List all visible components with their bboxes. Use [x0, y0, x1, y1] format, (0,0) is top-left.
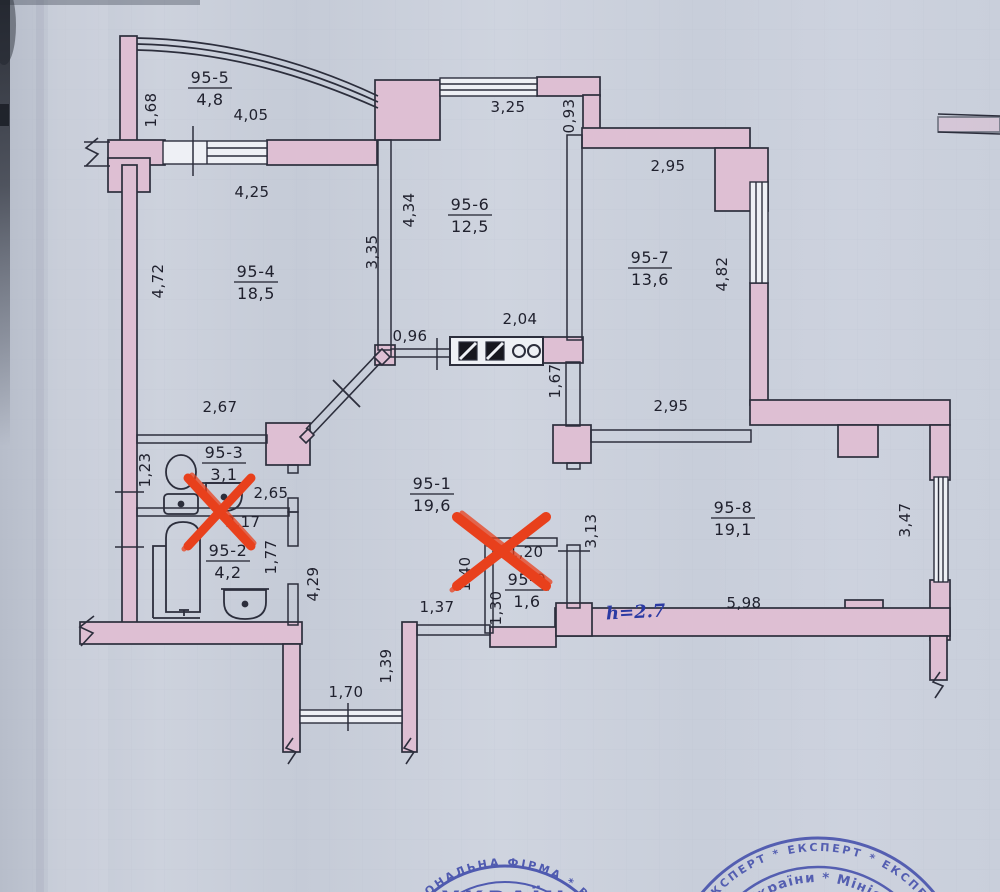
dimension-label: 1,23 [136, 453, 154, 488]
dimension-label: 4,05 [234, 106, 269, 124]
floor-plan: 1,684,054,254,723,354,343,250,932,954,82… [0, 0, 1000, 892]
room-number: 95-4 [237, 262, 276, 281]
room-number: 95-1 [413, 474, 452, 493]
ceiling-height-note: h=2.7 [605, 600, 666, 624]
room-label-95-6: 95-612,5 [448, 195, 492, 236]
room-area: 4,8 [196, 90, 223, 109]
dimension-label: 4,34 [400, 193, 418, 228]
window-kitchen [440, 78, 537, 96]
room-number: 95-3 [205, 443, 244, 462]
dimension-label: 3,13 [582, 514, 600, 549]
dimension-label: 4,72 [149, 264, 167, 299]
room-area: 4,2 [214, 563, 241, 582]
dimension-label: 1,37 [420, 598, 455, 616]
room-label-95-4: 95-418,5 [234, 262, 278, 303]
room-area: 13,6 [631, 270, 669, 289]
dimension-label: 1,77 [262, 540, 280, 575]
dimension-label: 2,65 [254, 484, 289, 502]
room-label-95-7: 95-713,6 [628, 248, 672, 289]
window-room4-balcony [163, 141, 267, 164]
room-number: 95-7 [631, 248, 670, 267]
dimension-label: 4,25 [235, 183, 270, 201]
scan-edge-mark [0, 104, 9, 126]
dimension-label: 2,95 [654, 397, 689, 415]
dimension-label: 2,67 [203, 398, 238, 416]
dimension-label: 2,04 [503, 310, 538, 328]
paper-fold-shadow [36, 0, 44, 892]
dimension-label: 1,67 [546, 364, 564, 399]
dimension-label: 1,30 [487, 591, 505, 626]
room-label-95-1: 95-119,6 [410, 474, 454, 515]
dimension-label: 3,25 [491, 98, 526, 116]
dimension-label: 3,47 [896, 503, 914, 538]
dimension-label: 4,29 [304, 567, 322, 602]
stamp-center-inner-text: УКРАЇН [441, 885, 568, 892]
dimension-label: 1,39 [377, 649, 395, 684]
window-loggia-exit [300, 710, 402, 723]
room-area: 3,1 [210, 465, 237, 484]
dimension-label: 0,96 [393, 327, 428, 345]
dimension-label: 1,70 [329, 683, 364, 701]
dimension-label: 3,35 [363, 235, 381, 270]
room-number: 95-5 [191, 68, 230, 87]
dimension-label: 1,68 [142, 93, 160, 128]
dimension-label: 2,95 [651, 157, 686, 175]
dimension-label: 4,82 [713, 257, 731, 292]
room-number: 95-2 [209, 541, 248, 560]
room-label-95-8: 95-819,1 [711, 498, 755, 539]
window-room8 [934, 477, 948, 582]
room-area: 19,1 [714, 520, 752, 539]
scanned-floor-plan-page: 1,684,054,254,723,354,343,250,932,954,82… [0, 0, 1000, 892]
room-number: 95-8 [714, 498, 753, 517]
room-number: 95-6 [451, 195, 490, 214]
dimension-label: 5,98 [727, 594, 762, 612]
room-area: 12,5 [451, 217, 489, 236]
window-room7 [750, 182, 768, 283]
room-area: 1,6 [513, 592, 540, 611]
stove-vent-block-icon [450, 337, 543, 365]
room-area: 19,6 [413, 496, 451, 515]
room-area: 18,5 [237, 284, 275, 303]
dimension-label: 0,93 [560, 99, 578, 134]
